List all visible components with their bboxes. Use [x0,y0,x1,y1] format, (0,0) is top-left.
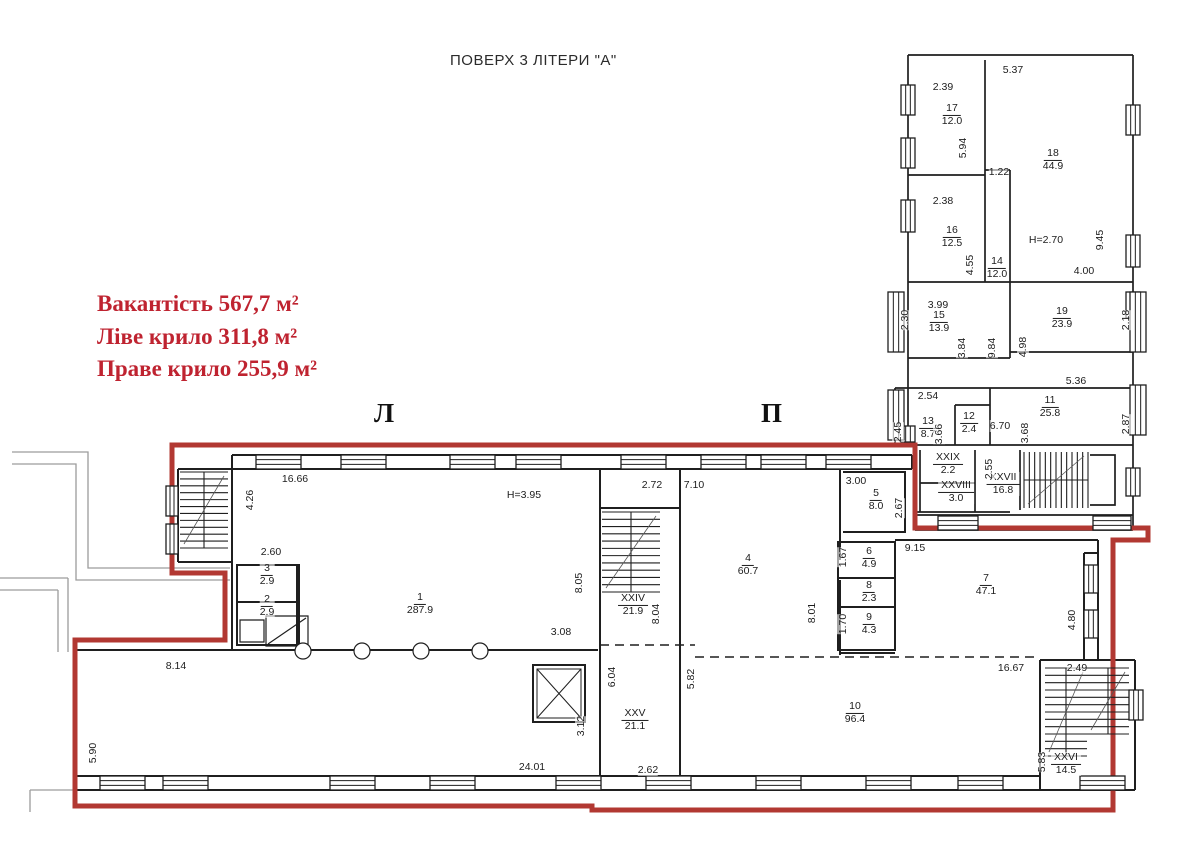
room-area: 47.1 [976,586,996,598]
dimension-label: 2.60 [261,546,281,558]
dimension-label: 9.84 [986,338,998,358]
room-area: 12.0 [942,116,962,128]
room-area: 13.9 [929,323,949,335]
room-area: 2.4 [962,424,977,436]
vacancy-total: Вакантість 567,7 м² [97,288,317,321]
column-symbol [413,643,429,659]
dimension-label: 2.18 [1120,310,1132,330]
window-symbol [901,138,915,168]
dimension-label: 4.98 [1017,337,1029,357]
room-label-19: 1923.9 [1052,306,1072,330]
room-label-3: 32.9 [260,563,275,587]
vacancy-right-wing: Праве крило 255,9 м² [97,353,317,386]
room-number: XXVI [1051,752,1081,765]
window-symbol [1129,690,1143,720]
room-number: 12 [960,411,978,424]
dimension-label: 5.37 [1003,64,1023,76]
window-symbol [341,455,386,469]
stairs [180,472,228,548]
room-label-9: 94.3 [862,612,877,636]
dimension-label: 4.26 [244,490,256,510]
room-label-14: 1412.0 [987,256,1007,280]
room-number: 9 [863,612,875,625]
room-area: 21.9 [623,606,643,618]
room-area: 12.5 [942,238,962,250]
room-number: 5 [870,488,882,501]
dimension-label: 2.49 [1067,662,1087,674]
room-label-6: 64.9 [862,546,877,570]
window-symbol [1126,105,1140,135]
room-number: 16 [943,225,961,238]
room-label-XXVIII: XXVIII3.0 [938,480,974,504]
room-label-15: 1513.9 [929,310,949,334]
page-title: ПОВЕРХ 3 ЛІТЕРИ "А" [450,52,617,69]
window-symbol [166,524,178,554]
room-label-16: 1612.5 [942,225,962,249]
column-symbol [354,643,370,659]
dimension-label: 16.66 [282,473,308,485]
floor-plan-page: ПОВЕРХ 3 ЛІТЕРИ "А" Вакантість 567,7 м² … [0,0,1200,848]
window-symbol [163,776,208,790]
dimension-label: 8.04 [650,604,662,624]
generated-symbols [100,85,1146,790]
dimension-label: 3.00 [846,475,866,487]
room-number: XXIV [618,593,648,606]
room-number: 11 [1042,395,1059,408]
room-label-10: 1096.4 [845,701,865,725]
dimension-label: 5.83 [1036,752,1048,772]
room-label-4: 460.7 [738,553,758,577]
room-area: 14.5 [1056,765,1076,777]
room-area: 2.9 [260,607,275,619]
elevator-shaft [533,665,585,722]
dimension-label: 9.15 [905,542,925,554]
dimension-label: 3.68 [1019,423,1031,443]
room-number: 10 [846,701,864,714]
dimension-label: 4.80 [1066,610,1078,630]
dimension-label: 3.84 [956,338,968,358]
room-area: 25.8 [1040,408,1060,420]
dimension-label: H=2.70 [1029,234,1063,246]
walls-upper-block [895,55,1133,530]
room-number: 17 [943,103,961,116]
window-symbol [646,776,691,790]
window-symbol [701,455,746,469]
room-number: 6 [863,546,875,559]
dimension-label: 7.10 [684,479,704,491]
right-wing-label: П [761,398,782,429]
room-area: 23.9 [1052,319,1072,331]
left-wing-label: Л [374,398,394,429]
dimension-label: 2.38 [933,195,953,207]
room-area: 4.3 [862,625,877,637]
room-number: 14 [988,256,1006,269]
stairs [602,512,660,592]
window-symbol [166,486,178,516]
room-number: 2 [261,594,273,607]
vacancy-outline [75,445,1148,810]
dimension-label: 24.01 [519,761,545,773]
dimension-label: 2.55 [983,459,995,479]
dimension-label: 6.04 [606,667,618,687]
window-symbol [756,776,801,790]
room-number: XXV [621,708,648,721]
room-area: 16.8 [993,485,1013,497]
dashed-partitions [600,645,1040,657]
dimension-label: 4.00 [1074,265,1094,277]
dimension-label: 1.67 [837,547,849,567]
window-symbol [1130,385,1146,435]
window-symbol [621,455,666,469]
dimension-label: 8.01 [806,603,818,623]
dimension-label: 2.87 [1120,414,1132,434]
room-area: 12.0 [987,269,1007,281]
room-area: 8.0 [869,501,884,513]
window-symbol [938,516,978,530]
dimension-label: 2.72 [642,479,662,491]
dimension-label: 16.67 [998,662,1024,674]
window-symbol [256,455,301,469]
stairs [1045,668,1087,756]
room-label-2: 22.9 [260,594,275,618]
room-area: 2.2 [941,465,956,477]
room-label-XXIX: XXIX2.2 [933,452,963,476]
dimension-label: 8.05 [573,573,585,593]
vacancy-left-wing: Ліве крило 311,8 м² [97,321,317,354]
dimension-label: 2.39 [933,81,953,93]
dimension-label: 2.54 [918,390,938,402]
dimension-label: 8.14 [166,660,186,672]
dimension-label: 2.30 [899,310,911,330]
dimension-label: 3.12 [575,716,587,736]
dimension-label: 4.55 [964,255,976,275]
window-symbol [1084,565,1098,593]
dimension-label: 3.66 [933,424,945,444]
dimension-label: 2.45 [892,422,904,442]
room-number: 8 [863,580,875,593]
room-label-XXVI: XXVI14.5 [1051,752,1081,776]
window-symbol [330,776,375,790]
column-symbol [472,643,488,659]
room-area: 3.0 [949,493,964,505]
dimension-label: 6.70 [990,420,1010,432]
window-symbol [100,776,145,790]
window-symbol [901,200,915,232]
room-label-XXIV: XXIV21.9 [618,593,648,617]
window-symbol [901,85,915,115]
dimension-label: 2.62 [638,764,658,776]
window-symbol [516,455,561,469]
window-symbol [866,776,911,790]
window-symbol [430,776,475,790]
room-number: 3 [261,563,273,576]
walls-main-strip [75,455,1135,790]
window-symbol [1084,610,1098,638]
window-symbol [1093,516,1131,530]
room-area: 2.9 [260,576,275,588]
room-label-5: 58.0 [869,488,884,512]
window-symbol [958,776,1003,790]
dimension-label: 3.08 [551,626,571,638]
window-symbol [1130,292,1146,352]
dimension-label: 9.45 [1094,230,1106,250]
dimension-label: 2.67 [893,498,905,518]
dimension-label: 3.99 [928,299,948,311]
stairs [1087,668,1129,734]
room-area: 60.7 [738,566,758,578]
window-symbol [761,455,806,469]
room-number: 15 [930,310,948,323]
room-area: 2.3 [862,593,877,605]
room-number: 4 [742,553,754,566]
room-label-12: 122.4 [960,411,978,435]
room-label-17: 1712.0 [942,103,962,127]
column-symbol [295,643,311,659]
room-label-XXV: XXV21.1 [621,708,648,732]
dimension-label: 5.36 [1066,375,1086,387]
room-area: 287.9 [407,605,433,617]
dimension-label: 1.22 [989,166,1009,178]
window-symbol [450,455,495,469]
room-number: 7 [980,573,992,586]
room-number: XXIX [933,452,963,465]
stairs [1024,452,1088,508]
room-label-1: 1287.9 [407,592,433,616]
dimension-label: H=3.95 [507,489,541,501]
room-label-18: 1844.9 [1043,148,1063,172]
dimension-label: 5.90 [87,743,99,763]
room-number: XXVIII [938,480,974,493]
room-label-11: 1125.8 [1040,395,1060,419]
room-area: 21.1 [625,721,645,733]
room-number: 1 [414,592,426,605]
room-label-7: 747.1 [976,573,996,597]
room-area: 96.4 [845,714,865,726]
room-area: 4.9 [862,559,877,571]
window-symbol [826,455,871,469]
room-number: 18 [1044,148,1062,161]
room-number: 19 [1053,306,1071,319]
window-symbol [1080,776,1125,790]
vacancy-stats: Вакантість 567,7 м² Ліве крило 311,8 м² … [97,288,317,386]
window-symbol [1126,468,1140,496]
dimension-label: 5.94 [957,138,969,158]
window-symbol [556,776,601,790]
room-area: 44.9 [1043,161,1063,173]
dimension-label: 1.70 [837,614,849,634]
window-symbol [1126,235,1140,267]
room-label-8: 82.3 [862,580,877,604]
dimension-label: 5.82 [685,669,697,689]
